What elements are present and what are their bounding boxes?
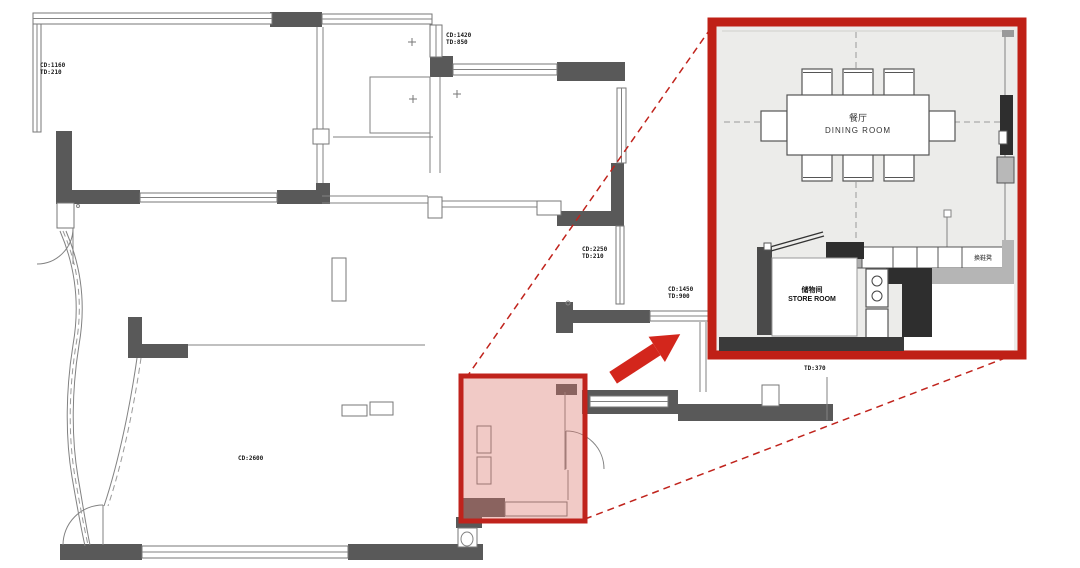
annotation-window-topmid: CD:1420TD:850 bbox=[446, 33, 471, 47]
annotation-cd2600: CD:2600 bbox=[238, 456, 263, 463]
chair bbox=[884, 153, 914, 181]
highlight-region bbox=[461, 376, 585, 521]
chair bbox=[802, 69, 832, 97]
inset-counter: 换鞋凳 bbox=[854, 240, 1014, 350]
dining-room-label-en: DINING ROOM bbox=[825, 126, 891, 135]
dining-table bbox=[787, 95, 929, 155]
store-room-label-en: STORE ROOM bbox=[788, 296, 836, 303]
floorplan-page: 餐厅 DINING ROOM 换鞋凳 bbox=[0, 0, 1080, 568]
dining-room-label-cn: 餐厅 bbox=[849, 112, 867, 123]
store-room-label-cn: 储物间 bbox=[801, 285, 823, 294]
annotation-window-right: CD:2250TD:210 bbox=[582, 247, 607, 261]
windows bbox=[33, 13, 714, 558]
annotation-window-topleft: CD:1160TD:210 bbox=[40, 63, 65, 77]
inset-panel: 餐厅 DINING ROOM 换鞋凳 bbox=[712, 22, 1022, 355]
chair bbox=[929, 111, 955, 141]
floor-plan-drawing: 餐厅 DINING ROOM 换鞋凳 bbox=[0, 0, 1080, 568]
chair bbox=[884, 69, 914, 97]
curved-balcony-wall bbox=[60, 231, 141, 546]
chair bbox=[843, 69, 873, 97]
bench-label: 换鞋凳 bbox=[974, 254, 992, 262]
doors bbox=[37, 197, 779, 547]
chair bbox=[802, 153, 832, 181]
chair bbox=[761, 111, 787, 141]
zoom-arrow bbox=[605, 322, 688, 391]
chair bbox=[843, 153, 873, 181]
annotation-window-entry: CD:1450TD:900 bbox=[668, 287, 693, 301]
annotation-td370: TD:370 bbox=[804, 366, 826, 373]
plan-furniture bbox=[332, 258, 473, 546]
